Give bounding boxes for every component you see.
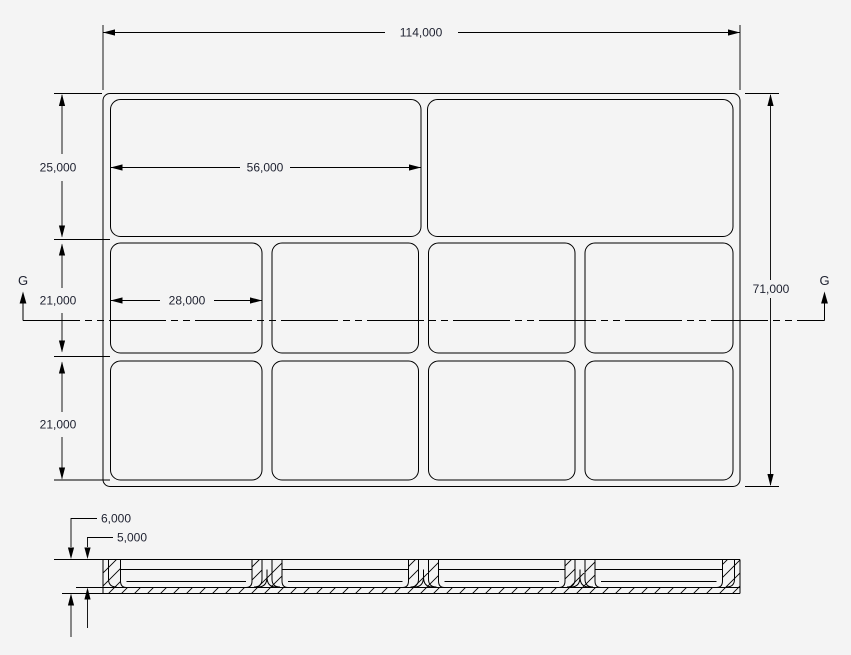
cad-drawing-canvas: G G 114,000 25,000 56,000 21,000 28,00 bbox=[0, 0, 851, 655]
dimension-overall-height: 71,000 bbox=[745, 94, 790, 487]
dimension-middle-compartment-width: 28,000 bbox=[111, 294, 263, 308]
dimension-value: 71,000 bbox=[753, 282, 790, 296]
dimension-value: 56,000 bbox=[247, 161, 284, 175]
compartment-bot-2 bbox=[272, 361, 419, 480]
dimension-overall-width: 114,000 bbox=[103, 25, 740, 90]
arrowhead-bottom bbox=[59, 226, 65, 238]
compartment-top-right bbox=[428, 100, 734, 237]
arrowhead-left bbox=[111, 297, 123, 303]
dimension-row1-height: 25,000 bbox=[40, 94, 110, 240]
arrowhead-right bbox=[250, 297, 262, 303]
section-arrow-left bbox=[20, 292, 27, 304]
arrowhead-left bbox=[103, 29, 115, 35]
section-view bbox=[54, 560, 740, 594]
arrowhead-right bbox=[728, 29, 740, 35]
arrowhead-top bbox=[68, 548, 74, 560]
hatch-material bbox=[103, 560, 740, 594]
arrowhead-bottom bbox=[767, 474, 773, 486]
compartment-mid-4 bbox=[585, 243, 733, 353]
section-label-right: G bbox=[819, 273, 829, 288]
dimension-value: 21,000 bbox=[40, 294, 77, 308]
dimension-top-compartment-width: 56,000 bbox=[111, 161, 422, 175]
leader-line bbox=[88, 538, 114, 548]
plan-view bbox=[103, 94, 740, 487]
section-label-left: G bbox=[18, 273, 28, 288]
compartment-bot-4 bbox=[585, 361, 733, 480]
cad-drawing-svg: G G 114,000 25,000 56,000 21,000 28,00 bbox=[0, 0, 851, 655]
arrowhead-right bbox=[409, 164, 421, 170]
arrowhead-bottom bbox=[68, 594, 74, 606]
dimension-value: 21,000 bbox=[40, 418, 77, 432]
dimension-value: 25,000 bbox=[40, 161, 77, 175]
compartment-bot-3 bbox=[429, 361, 576, 480]
dimension-value: 5,000 bbox=[117, 531, 147, 545]
dimension-row2-height: 21,000 bbox=[40, 244, 110, 357]
compartment-mid-2 bbox=[272, 243, 419, 353]
arrowhead-top bbox=[767, 94, 773, 106]
arrowhead-left bbox=[111, 164, 123, 170]
leader-line bbox=[71, 519, 97, 548]
section-cut-line-gg: G G bbox=[18, 273, 830, 321]
dimension-value: 28,000 bbox=[169, 294, 206, 308]
compartment-bot-1 bbox=[111, 361, 263, 480]
dimension-row3-height: 21,000 bbox=[40, 362, 110, 481]
arrowhead-top bbox=[84, 548, 90, 560]
compartment-mid-3 bbox=[429, 243, 576, 353]
arrowhead-top bbox=[59, 362, 65, 374]
section-arrow-right bbox=[821, 292, 828, 304]
arrowhead-bottom bbox=[59, 341, 65, 353]
arrowhead-bottom bbox=[59, 468, 65, 480]
arrowhead-top bbox=[59, 94, 65, 106]
dimension-value: 114,000 bbox=[400, 26, 443, 40]
arrowhead-top bbox=[59, 244, 65, 256]
dimension-value: 6,000 bbox=[101, 512, 131, 526]
